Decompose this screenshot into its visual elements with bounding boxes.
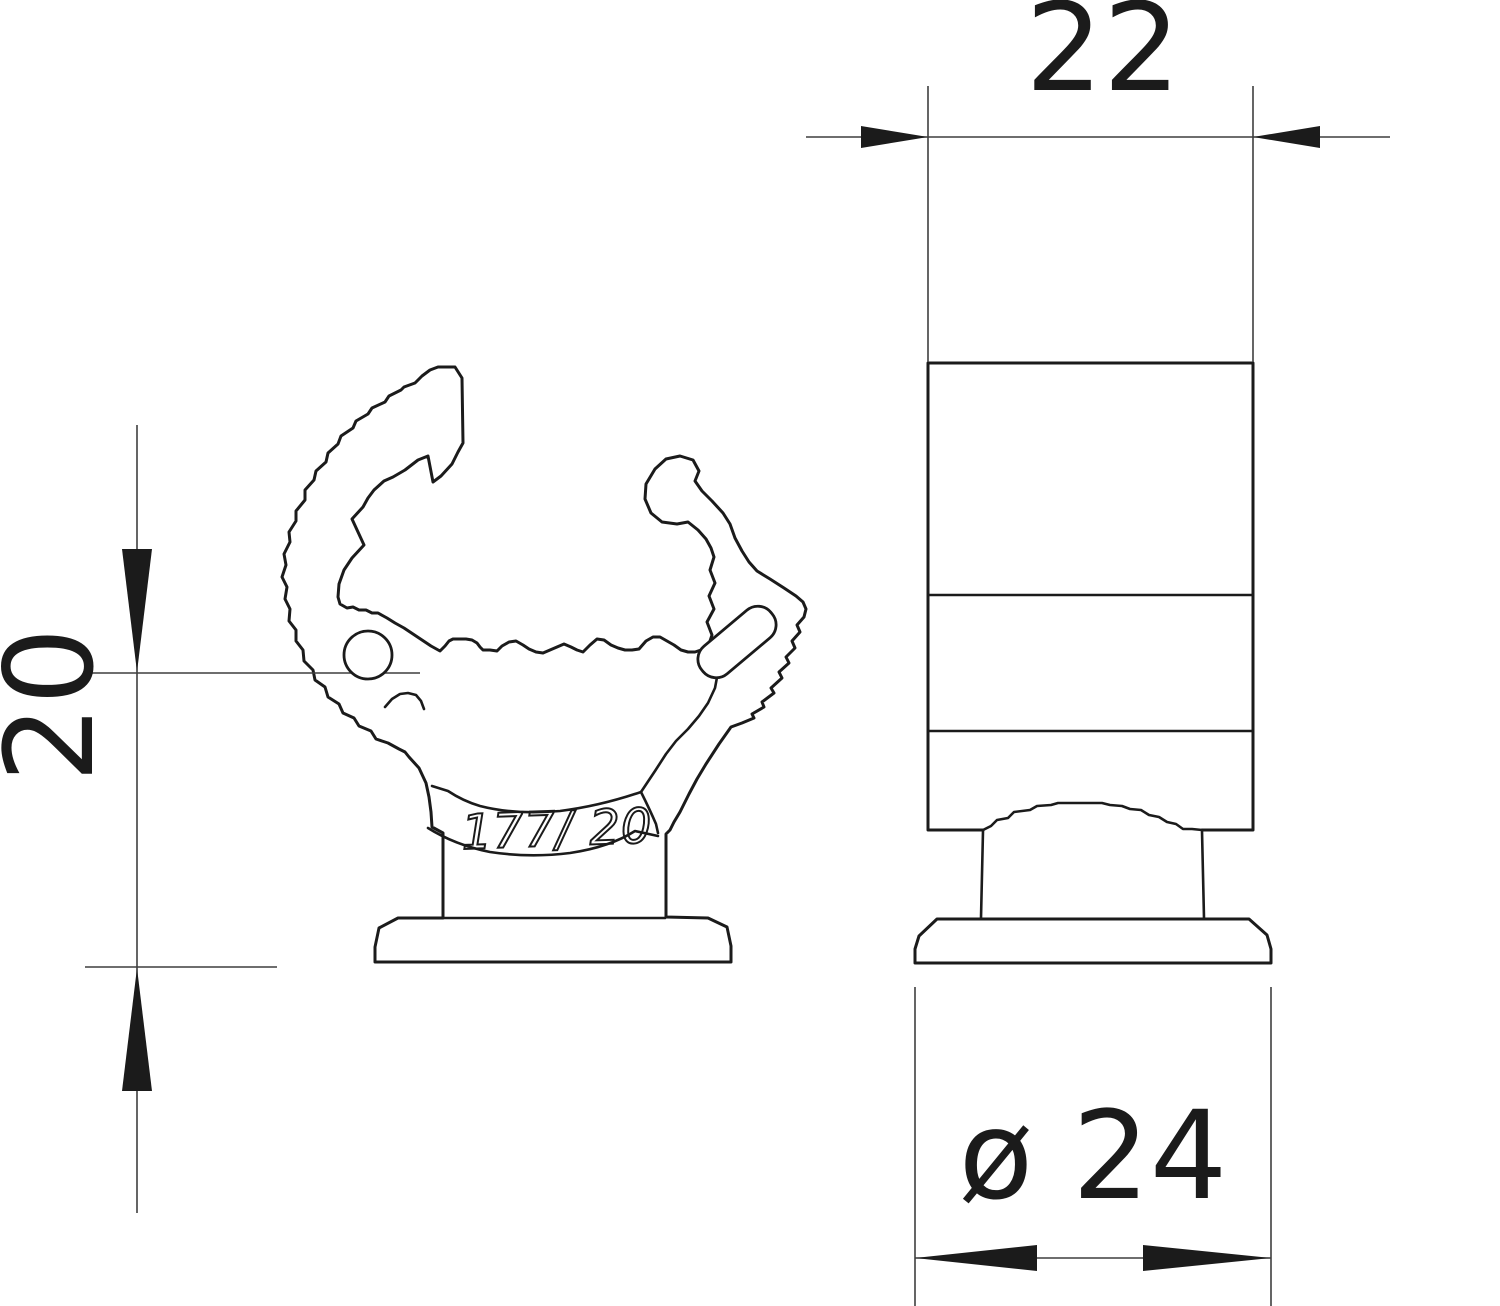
pivot-hole [344,631,392,679]
front-view [915,363,1271,963]
neck-left-edge [981,831,983,918]
dimension-width-value: 22 [1025,0,1180,119]
part-marking-text: 177/ 20 [460,798,653,861]
neck-right-edge [1202,831,1204,918]
technical-drawing-canvas: 177/ 20 22 20 ø 24 [0,0,1500,1306]
dimension-height-value: 20 [0,627,121,782]
technical-drawing-page: 177/ 20 22 20 ø 24 [0,0,1500,1306]
dimension-diameter: ø 24 [915,987,1271,1306]
dim-arrowhead-right-icon [1143,1245,1271,1271]
dimension-diameter-value: ø 24 [959,1085,1228,1227]
dim-arrowhead-right-icon [861,126,928,148]
dim-arrowhead-down-icon [122,549,152,672]
dim-arrowhead-left-icon [915,1245,1037,1271]
dimension-width: 22 [806,0,1390,362]
clamp-body-outline [928,363,1253,830]
dim-arrowhead-up-icon [122,968,152,1091]
dim-arrowhead-left-icon [1253,126,1320,148]
base-flange-front [915,919,1271,963]
